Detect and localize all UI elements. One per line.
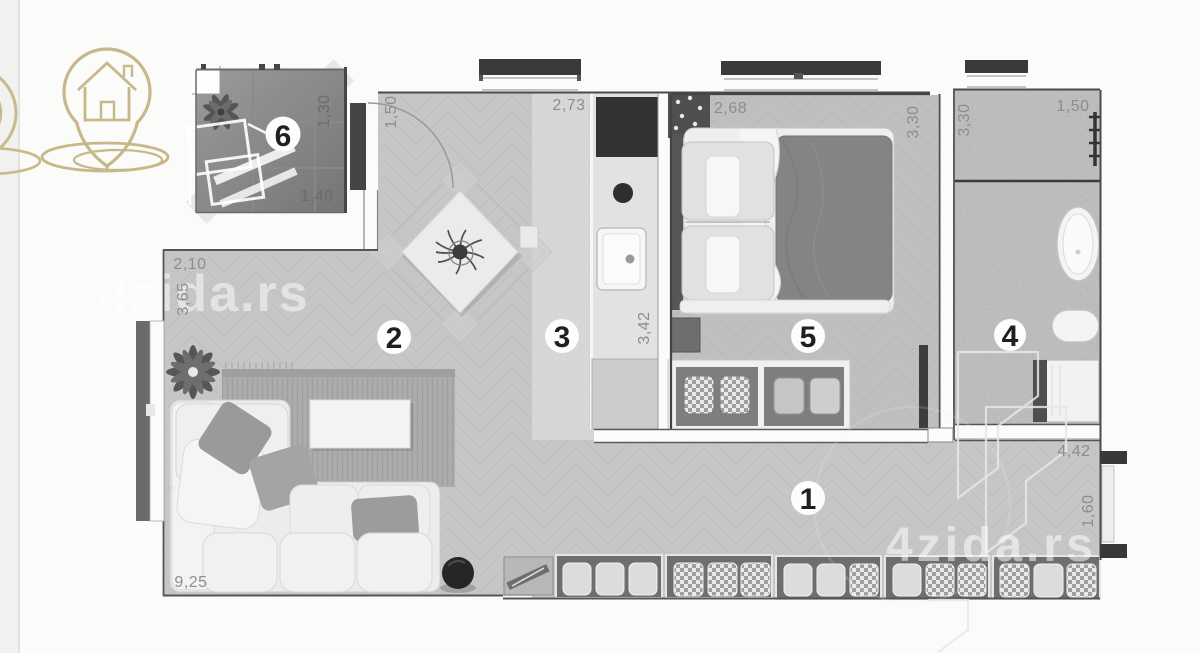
svg-text:1: 1 <box>800 483 817 516</box>
svg-text:2,73: 2,73 <box>552 97 585 114</box>
svg-text:1,40: 1,40 <box>300 188 333 205</box>
svg-text:9,25: 9,25 <box>174 574 207 591</box>
svg-text:3,42: 3,42 <box>636 311 653 344</box>
svg-text:3: 3 <box>554 321 571 354</box>
svg-text:2,68: 2,68 <box>714 100 747 117</box>
svg-text:6: 6 <box>275 120 292 153</box>
svg-text:3,30: 3,30 <box>905 105 922 138</box>
svg-text:4,42: 4,42 <box>1057 443 1090 460</box>
svg-text:1,30: 1,30 <box>316 94 333 127</box>
svg-text:2: 2 <box>386 322 403 355</box>
svg-text:1,50: 1,50 <box>383 95 400 128</box>
svg-text:1,60: 1,60 <box>1080 494 1097 527</box>
svg-text:4zida.rs: 4zida.rs <box>886 519 1097 572</box>
svg-text:3,65: 3,65 <box>175 282 192 315</box>
svg-text:2,10: 2,10 <box>173 256 206 273</box>
svg-text:3,30: 3,30 <box>956 103 973 136</box>
svg-text:5: 5 <box>800 321 817 354</box>
svg-text:1,50: 1,50 <box>1056 98 1089 115</box>
svg-text:4: 4 <box>1002 320 1019 353</box>
svg-text:4zida.rs: 4zida.rs <box>100 265 310 323</box>
